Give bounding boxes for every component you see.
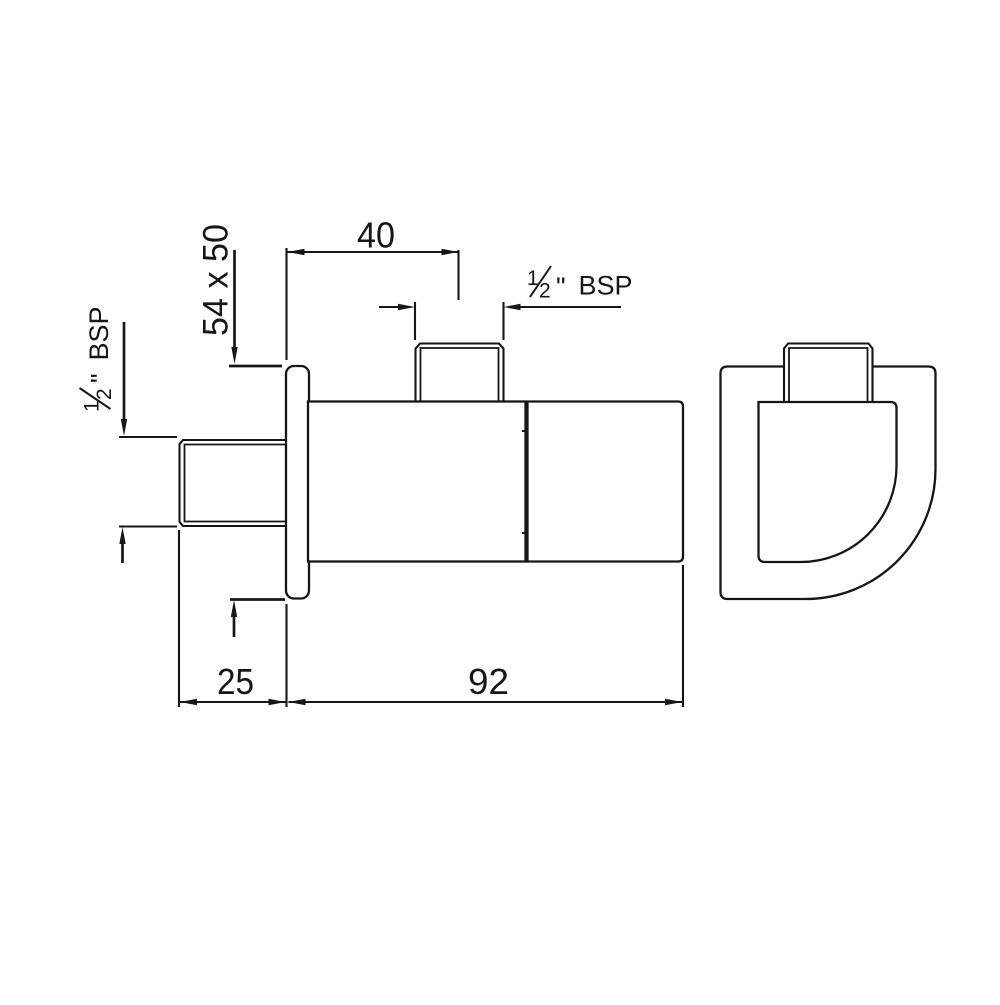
svg-text:2: 2	[539, 280, 551, 303]
svg-text:40: 40	[357, 215, 395, 256]
svg-text:54 x 50: 54 x 50	[197, 224, 236, 336]
svg-text:2: 2	[93, 388, 116, 400]
svg-text:BSP: BSP	[84, 306, 114, 360]
svg-text:": "	[556, 272, 566, 302]
svg-text:BSP: BSP	[579, 271, 633, 301]
svg-text:92: 92	[468, 661, 509, 702]
svg-text:25: 25	[217, 661, 254, 702]
svg-text:": "	[86, 373, 116, 383]
